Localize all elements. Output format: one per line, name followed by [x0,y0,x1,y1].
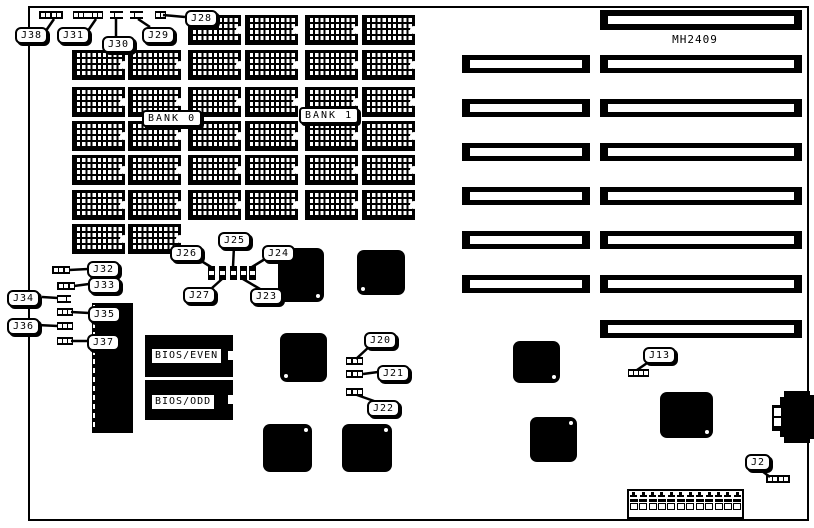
power-pin [657,491,666,517]
jumper-label-J25: J25 [218,232,251,249]
ic-chip [357,250,405,295]
expansion-slot-long [600,10,802,30]
jumper-label-J38: J38 [15,27,48,44]
dram-chip [72,155,125,185]
dram-chip [72,50,125,80]
ic-chip [513,341,560,383]
orientation-dot [304,428,308,432]
expansion-slot-short [462,99,590,117]
jumper-label-J34: J34 [7,290,40,307]
keyboard-din-connector [770,391,814,443]
orientation-dot [705,430,709,434]
jumper-label-J23: J23 [250,288,283,305]
power-pin [686,491,695,517]
power-pin [629,491,638,517]
expansion-slot-long [600,231,802,249]
jumper-block-J37 [57,337,73,345]
dram-chip [362,87,415,117]
dram-chip [362,15,415,45]
dram-chip [362,121,415,151]
ic-chip [280,333,327,382]
power-pin [667,491,676,517]
power-connector [627,489,744,519]
dram-chip [72,121,125,151]
orientation-dot [361,287,365,291]
dram-chip [245,50,298,80]
expansion-slot-long [600,320,802,338]
dram-chip [305,190,358,220]
power-pin [695,491,704,517]
board-model-label: MH2409 [650,33,740,46]
dram-chip [305,121,358,151]
ic-chip [342,424,392,472]
dram-chip [245,87,298,117]
expansion-slot-short [462,143,590,161]
dram-chip [128,155,181,185]
power-pin [676,491,685,517]
jumper-label-J32: J32 [87,261,120,278]
dram-chip [245,190,298,220]
jumper-block-J22 [346,388,363,396]
dram-chip [305,15,358,45]
orientation-dot [284,374,288,378]
jumper-block-J2 [766,475,790,483]
bios-even-label: BIOS/EVEN [150,347,223,365]
jumper-block-J35 [57,308,73,316]
dram-chip [188,155,241,185]
jumper-block-J28 [155,11,166,19]
orientation-dot [384,428,388,432]
jumper-label-J20: J20 [364,332,397,349]
dram-chip [362,190,415,220]
expansion-slot-long [600,99,802,117]
jumper-label-J21: J21 [377,365,410,382]
ic-chip [263,424,312,472]
jumper-block-J21 [346,370,363,378]
jumper-block-vertical [249,266,256,280]
jumper-block-J29 [130,11,143,19]
board-outline [28,6,809,521]
jumper-block-J30 [110,11,123,19]
din-pin-hole [773,407,782,417]
expansion-slot-short [462,55,590,73]
jumper-label-J24: J24 [262,245,295,262]
orientation-dot [569,421,573,425]
power-pin [638,491,647,517]
jumper-label-J31: J31 [57,27,90,44]
jumper-label-J26: J26 [170,245,203,262]
jumper-block-J32 [52,266,70,274]
jumper-block-J20 [346,357,363,365]
jumper-label-J29: J29 [142,27,175,44]
dram-chip [245,155,298,185]
orientation-dot [552,375,556,379]
power-pin [723,491,732,517]
power-pin [704,491,713,517]
expansion-slot-long [600,143,802,161]
orientation-dot [316,294,320,298]
jumper-label-J27: J27 [183,287,216,304]
jumper-label-J37: J37 [87,334,120,351]
jumper-block-J34 [57,295,71,303]
bank0-label: BANK 0 [142,110,202,127]
dram-chip [72,190,125,220]
dram-chip [245,15,298,45]
din-pin-hole [773,417,782,427]
expansion-slot-short [462,231,590,249]
jumper-label-J13: J13 [643,347,676,364]
ic-chip [530,417,577,462]
jumper-label-J22: J22 [367,400,400,417]
dram-chip [362,155,415,185]
jumper-label-J35: J35 [88,306,121,323]
jumper-block-J33 [57,282,75,290]
jumper-block-vertical [230,266,237,280]
dram-chip [188,50,241,80]
power-pin [733,491,742,517]
dram-chip [72,224,125,254]
jumper-block-vertical [208,266,215,280]
expansion-slot-short [462,275,590,293]
power-pin [648,491,657,517]
jumper-block-J38 [39,11,63,19]
expansion-slot-short [462,187,590,205]
ic-chip [660,392,713,438]
dram-chip [305,50,358,80]
dram-chip [305,155,358,185]
power-pin [714,491,723,517]
jumper-block-J13 [628,369,649,377]
jumper-block-vertical [240,266,247,280]
expansion-slot-long [600,187,802,205]
jumper-label-J28: J28 [185,10,218,27]
jumper-label-J36: J36 [7,318,40,335]
jumper-block-J31 [73,11,103,19]
jumper-label-J30: J30 [102,36,135,53]
jumper-label-J2: J2 [745,454,771,471]
dram-chip [188,190,241,220]
dram-chip [128,190,181,220]
motherboard-diagram: MH2409 BIOS/EVEN BIOS/ODD BANK 0 BANK 1 … [0,0,814,528]
dram-chip [72,87,125,117]
dram-chip [362,50,415,80]
expansion-slot-long [600,55,802,73]
bank1-label: BANK 1 [299,107,359,124]
dram-chip [128,50,181,80]
jumper-block-J36 [57,322,73,330]
bios-odd-label: BIOS/ODD [150,393,216,411]
dram-chip [245,121,298,151]
jumper-label-J33: J33 [88,277,121,294]
jumper-block-vertical [219,266,226,280]
expansion-slot-long [600,275,802,293]
